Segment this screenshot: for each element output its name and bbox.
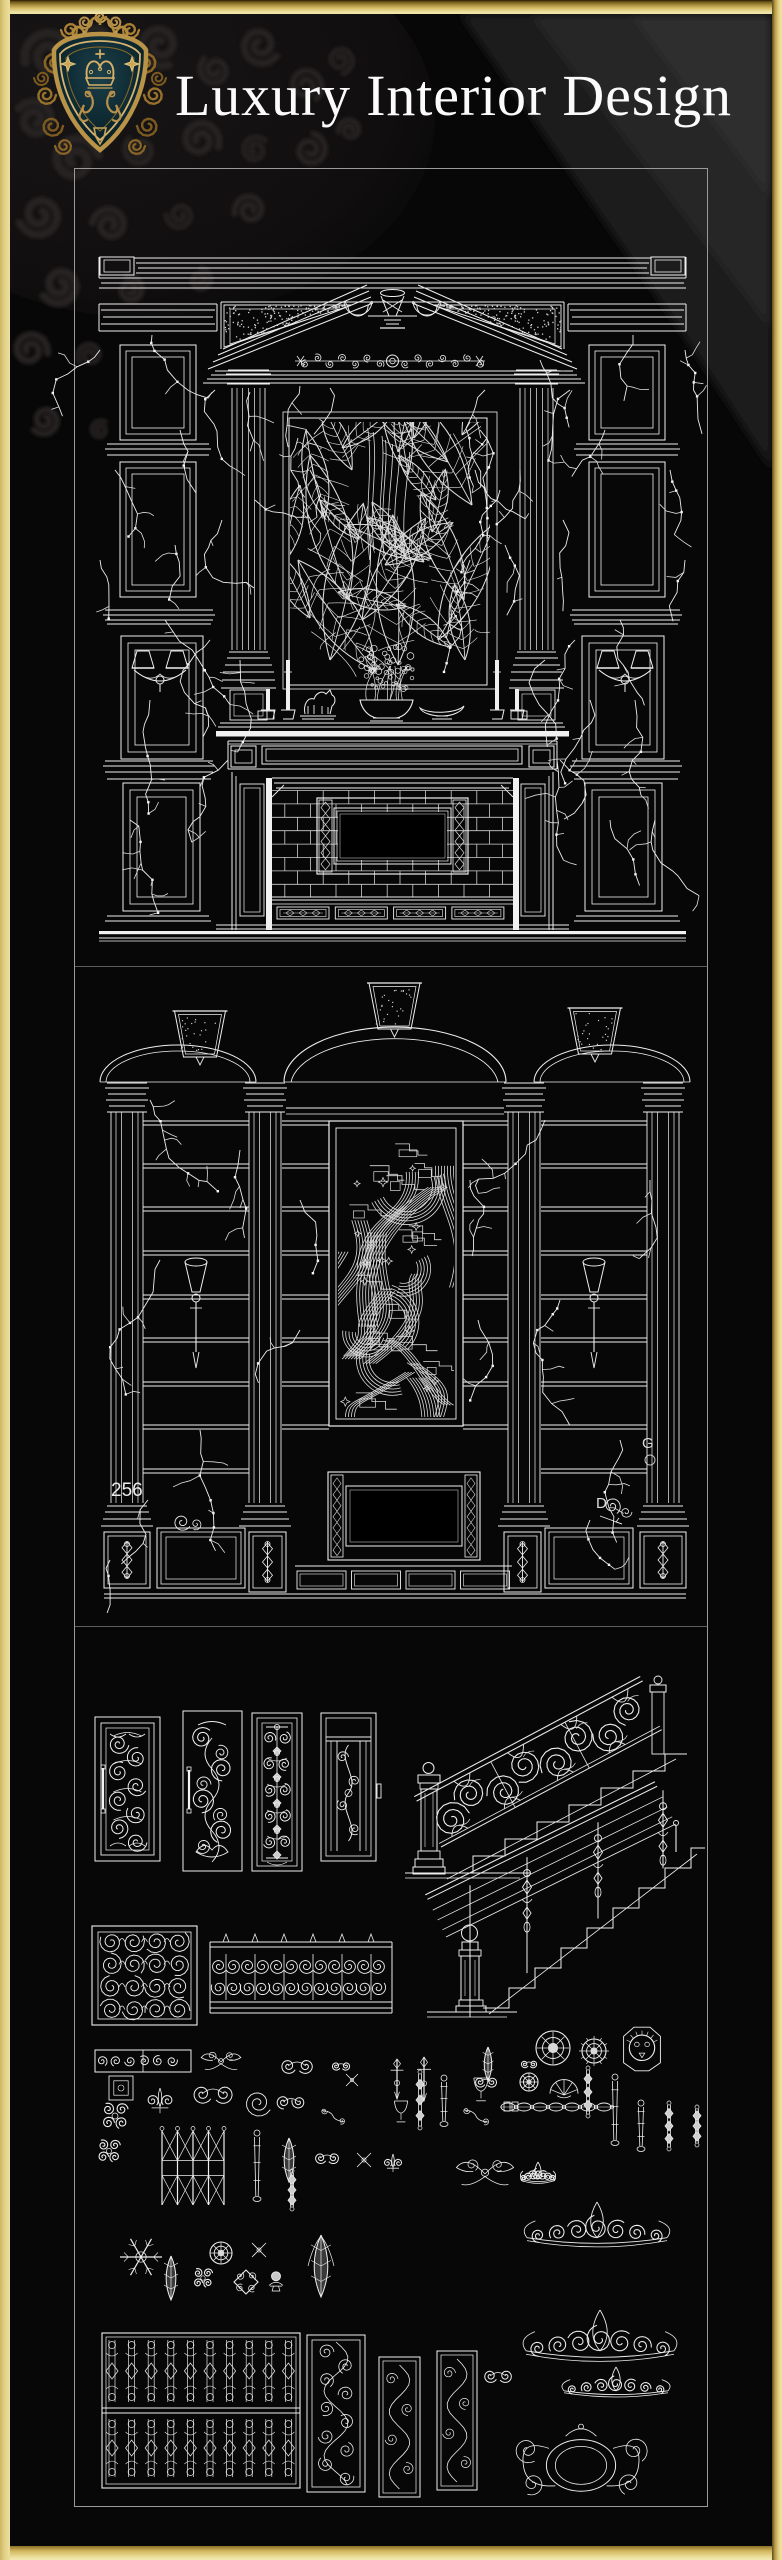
svg-text:Luxury Interior Design: Luxury Interior Design <box>175 63 731 128</box>
svg-text:D: D <box>596 1495 607 1512</box>
svg-text:256: 256 <box>111 1480 143 1501</box>
svg-text:G: G <box>642 1435 654 1452</box>
